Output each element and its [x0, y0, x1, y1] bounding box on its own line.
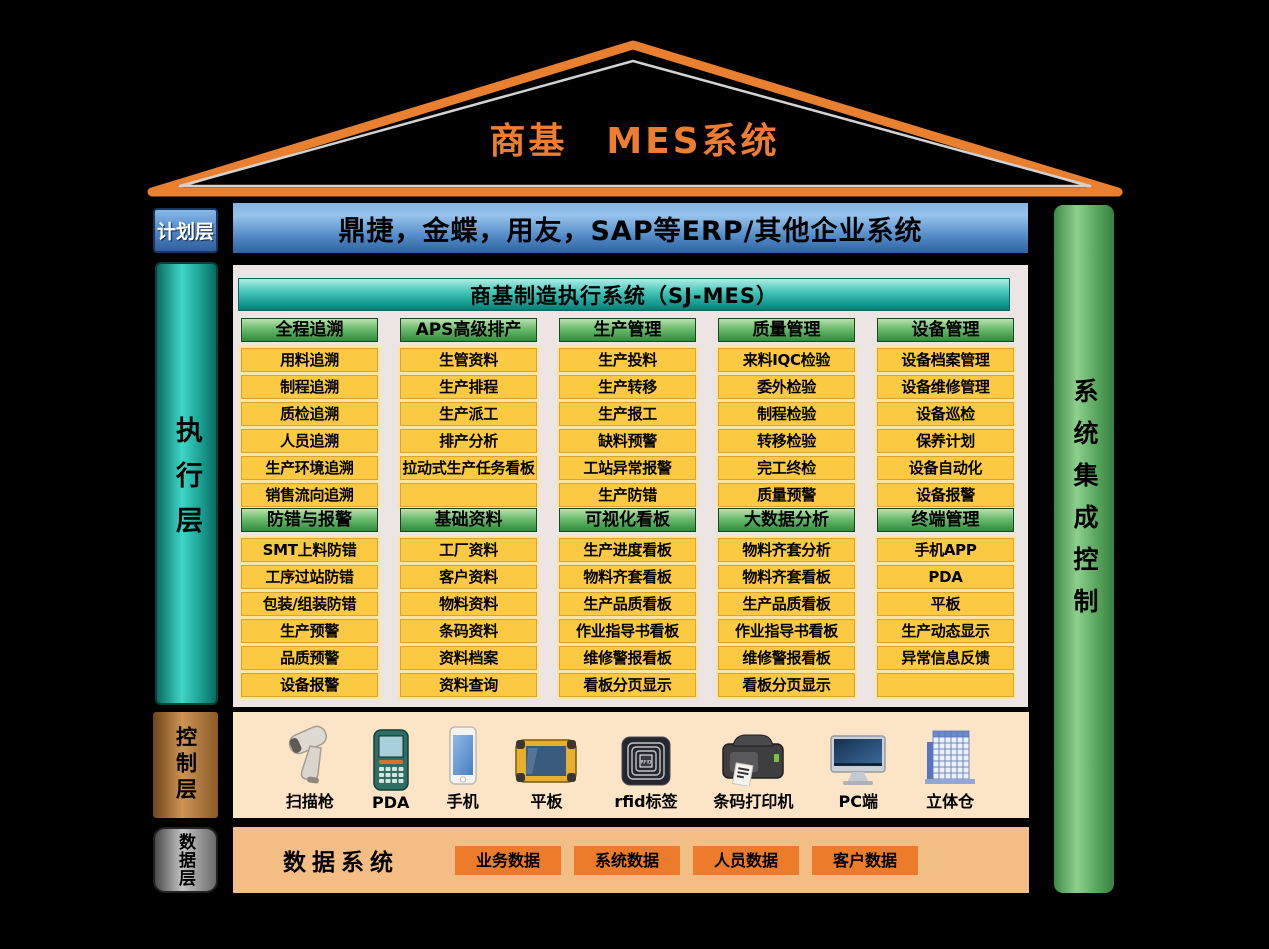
- module-column-header: 终端管理: [877, 508, 1014, 532]
- module-item: 品质预警: [241, 646, 378, 670]
- module-column-items: 生管资料生产排程生产派工排产分析拉动式生产任务看板: [400, 348, 537, 507]
- module-column-bigdata: 大数据分析 物料齐套分析物料齐套看板生产品质看板作业指导书看板维修警报看板看板分…: [718, 508, 855, 700]
- module-item: 人员追溯: [241, 429, 378, 453]
- module-column-production: 生产管理 生产投料生产转移生产报工缺料预警工站异常报警生产防错: [559, 318, 696, 510]
- system-integration-pillar: 系统集成控制: [1054, 205, 1114, 893]
- module-item: 质量预警: [718, 483, 855, 507]
- module-item: 生产投料: [559, 348, 696, 372]
- module-item: [400, 483, 537, 507]
- module-item: 资料查询: [400, 673, 537, 697]
- module-column-items: 设备档案管理设备维修管理设备巡检保养计划设备自动化设备报警: [877, 348, 1014, 507]
- module-item: 用料追溯: [241, 348, 378, 372]
- device-barcode-printer: 条码打印机: [713, 732, 793, 812]
- data-system-bar: 数据系统 业务数据系统数据人员数据客户数据: [233, 827, 1029, 893]
- mes-architecture-diagram: 商基 MES系统 计划层 鼎捷，金蝶，用友，SAP等ERP/其他企业系统 执行层…: [0, 0, 1269, 949]
- module-item: 设备报警: [241, 673, 378, 697]
- module-item: 异常信息反馈: [877, 646, 1014, 670]
- module-item: 销售流向追溯: [241, 483, 378, 507]
- module-item: 看板分页显示: [559, 673, 696, 697]
- module-item: 生产防错: [559, 483, 696, 507]
- module-item: 维修警报看板: [718, 646, 855, 670]
- module-item: 物料齐套分析: [718, 538, 855, 562]
- module-item: 工站异常报警: [559, 456, 696, 480]
- module-item: [877, 673, 1014, 697]
- module-item: 作业指导书看板: [559, 619, 696, 643]
- data-box: 人员数据: [693, 846, 799, 875]
- device-label: 条码打印机: [713, 788, 793, 812]
- erp-systems-bar: 鼎捷，金蝶，用友，SAP等ERP/其他企业系统: [233, 203, 1028, 253]
- module-item: 条码资料: [400, 619, 537, 643]
- module-item: SMT上料防错: [241, 538, 378, 562]
- execution-panel: 商基制造执行系统（SJ-MES） 全程追溯 用料追溯制程追溯质检追溯人员追溯生产…: [233, 265, 1028, 707]
- svg-text:RFID: RFID: [641, 760, 652, 766]
- module-item: 包装/组装防错: [241, 592, 378, 616]
- module-item: 资料档案: [400, 646, 537, 670]
- module-item: PDA: [877, 565, 1014, 589]
- device-tablet: 平板: [514, 736, 578, 812]
- data-box: 业务数据: [455, 846, 561, 875]
- module-item: 物料齐套看板: [559, 565, 696, 589]
- module-column-items: 手机APPPDA平板生产动态显示异常信息反馈: [877, 538, 1014, 697]
- module-column-master-data: 基础资料 工厂资料客户资料物料资料条码资料资料档案资料查询: [400, 508, 537, 700]
- module-item: 生产排程: [400, 375, 537, 399]
- module-item: 设备维修管理: [877, 375, 1014, 399]
- module-column-terminal: 终端管理 手机APPPDA平板生产动态显示异常信息反馈: [877, 508, 1014, 700]
- module-item: 手机APP: [877, 538, 1014, 562]
- module-item: 生产预警: [241, 619, 378, 643]
- data-box: 系统数据: [574, 846, 680, 875]
- device-barcode-scanner: 扫描枪: [285, 724, 335, 812]
- module-item: 缺料预警: [559, 429, 696, 453]
- module-item: 工厂资料: [400, 538, 537, 562]
- device-label: 扫描枪: [286, 788, 334, 812]
- data-box: 客户数据: [812, 846, 918, 875]
- module-column-error-proofing: 防错与报警 SMT上料防错工序过站防错包装/组装防错生产预警品质预警设备报警: [241, 508, 378, 700]
- warehouse-icon: [923, 728, 977, 786]
- barcode-printer-icon: [721, 732, 785, 786]
- module-item: 设备档案管理: [877, 348, 1014, 372]
- module-column-items: 物料齐套分析物料齐套看板生产品质看板作业指导书看板维修警报看板看板分页显示: [718, 538, 855, 697]
- module-column-header: 防错与报警: [241, 508, 378, 532]
- module-item: 完工终检: [718, 456, 855, 480]
- barcode-scanner-icon: [285, 724, 335, 786]
- module-item: 设备报警: [877, 483, 1014, 507]
- module-column-aps: APS高级排产 生管资料生产排程生产派工排产分析拉动式生产任务看板: [400, 318, 537, 510]
- module-column-header: 大数据分析: [718, 508, 855, 532]
- module-row-1: 全程追溯 用料追溯制程追溯质检追溯人员追溯生产环境追溯销售流向追溯 APS高级排…: [241, 318, 1014, 510]
- device-label: PDA: [372, 793, 409, 812]
- device-pda: PDA: [371, 729, 411, 812]
- module-item: 保养计划: [877, 429, 1014, 453]
- module-column-header: 可视化看板: [559, 508, 696, 532]
- module-item: 设备巡检: [877, 402, 1014, 426]
- module-column-trace: 全程追溯 用料追溯制程追溯质检追溯人员追溯生产环境追溯销售流向追溯: [241, 318, 378, 510]
- module-item: 转移检验: [718, 429, 855, 453]
- data-layer-label: 数据层: [153, 827, 218, 893]
- device-label: PC端: [839, 788, 878, 812]
- device-label: rfid标签: [614, 788, 677, 812]
- module-item: 客户资料: [400, 565, 537, 589]
- data-boxes: 业务数据系统数据人员数据客户数据: [455, 846, 918, 875]
- module-column-items: 工厂资料客户资料物料资料条码资料资料档案资料查询: [400, 538, 537, 697]
- pc-icon: [829, 734, 887, 786]
- module-item: 来料IQC检验: [718, 348, 855, 372]
- pda-icon: [371, 729, 411, 791]
- control-devices-bar: 扫描枪 PDA: [233, 712, 1029, 818]
- module-column-kanban: 可视化看板 生产进度看板物料齐套看板生产品质看板作业指导书看板维修警报看板看板分…: [559, 508, 696, 700]
- module-column-header: 生产管理: [559, 318, 696, 342]
- tablet-icon: [514, 736, 578, 786]
- module-column-header: 全程追溯: [241, 318, 378, 342]
- module-item: 物料齐套看板: [718, 565, 855, 589]
- module-column-equipment: 设备管理 设备档案管理设备维修管理设备巡检保养计划设备自动化设备报警: [877, 318, 1014, 510]
- module-column-items: 生产投料生产转移生产报工缺料预警工站异常报警生产防错: [559, 348, 696, 507]
- module-column-header: APS高级排产: [400, 318, 537, 342]
- module-item: 生产转移: [559, 375, 696, 399]
- module-column-items: SMT上料防错工序过站防错包装/组装防错生产预警品质预警设备报警: [241, 538, 378, 697]
- module-row-2: 防错与报警 SMT上料防错工序过站防错包装/组装防错生产预警品质预警设备报警 基…: [241, 508, 1014, 700]
- device-rfid-tag: RFID rfid标签: [614, 736, 677, 812]
- module-item: 生产环境追溯: [241, 456, 378, 480]
- module-item: 拉动式生产任务看板: [400, 456, 537, 480]
- module-item: 质检追溯: [241, 402, 378, 426]
- module-column-header: 设备管理: [877, 318, 1014, 342]
- module-item: 设备自动化: [877, 456, 1014, 480]
- module-column-quality: 质量管理 来料IQC检验委外检验制程检验转移检验完工终检质量预警: [718, 318, 855, 510]
- data-system-title: 数据系统: [283, 827, 399, 893]
- module-item: 委外检验: [718, 375, 855, 399]
- device-label: 立体仓: [926, 788, 974, 812]
- module-item: 生产品质看板: [718, 592, 855, 616]
- execution-layer-label: 执行层: [155, 262, 218, 705]
- module-item: 作业指导书看板: [718, 619, 855, 643]
- phone-icon: [448, 726, 478, 786]
- module-column-items: 生产进度看板物料齐套看板生产品质看板作业指导书看板维修警报看板看板分页显示: [559, 538, 696, 697]
- module-item: 看板分页显示: [718, 673, 855, 697]
- module-item: 生产动态显示: [877, 619, 1014, 643]
- device-pc: PC端: [829, 734, 887, 812]
- module-column-header: 基础资料: [400, 508, 537, 532]
- module-item: 生管资料: [400, 348, 537, 372]
- control-layer-label: 控制层: [153, 712, 218, 818]
- module-item: 生产品质看板: [559, 592, 696, 616]
- device-label: 平板: [530, 788, 562, 812]
- sjmes-system-header: 商基制造执行系统（SJ-MES）: [238, 278, 1010, 311]
- module-item: 平板: [877, 592, 1014, 616]
- module-item: 生产派工: [400, 402, 537, 426]
- module-item: 生产进度看板: [559, 538, 696, 562]
- module-item: 制程检验: [718, 402, 855, 426]
- diagram-title: 商基 MES系统: [0, 112, 1269, 164]
- device-warehouse: 立体仓: [923, 728, 977, 812]
- module-item: 排产分析: [400, 429, 537, 453]
- module-item: 工序过站防错: [241, 565, 378, 589]
- device-phone: 手机: [447, 726, 479, 812]
- planning-layer-label: 计划层: [153, 208, 218, 253]
- rfid-tag-icon: RFID: [621, 736, 671, 786]
- device-label: 手机: [447, 788, 479, 812]
- module-column-items: 来料IQC检验委外检验制程检验转移检验完工终检质量预警: [718, 348, 855, 507]
- module-column-header: 质量管理: [718, 318, 855, 342]
- roof-outline: [0, 0, 1269, 210]
- module-item: 生产报工: [559, 402, 696, 426]
- module-item: 制程追溯: [241, 375, 378, 399]
- module-item: 维修警报看板: [559, 646, 696, 670]
- module-item: 物料资料: [400, 592, 537, 616]
- module-column-items: 用料追溯制程追溯质检追溯人员追溯生产环境追溯销售流向追溯: [241, 348, 378, 507]
